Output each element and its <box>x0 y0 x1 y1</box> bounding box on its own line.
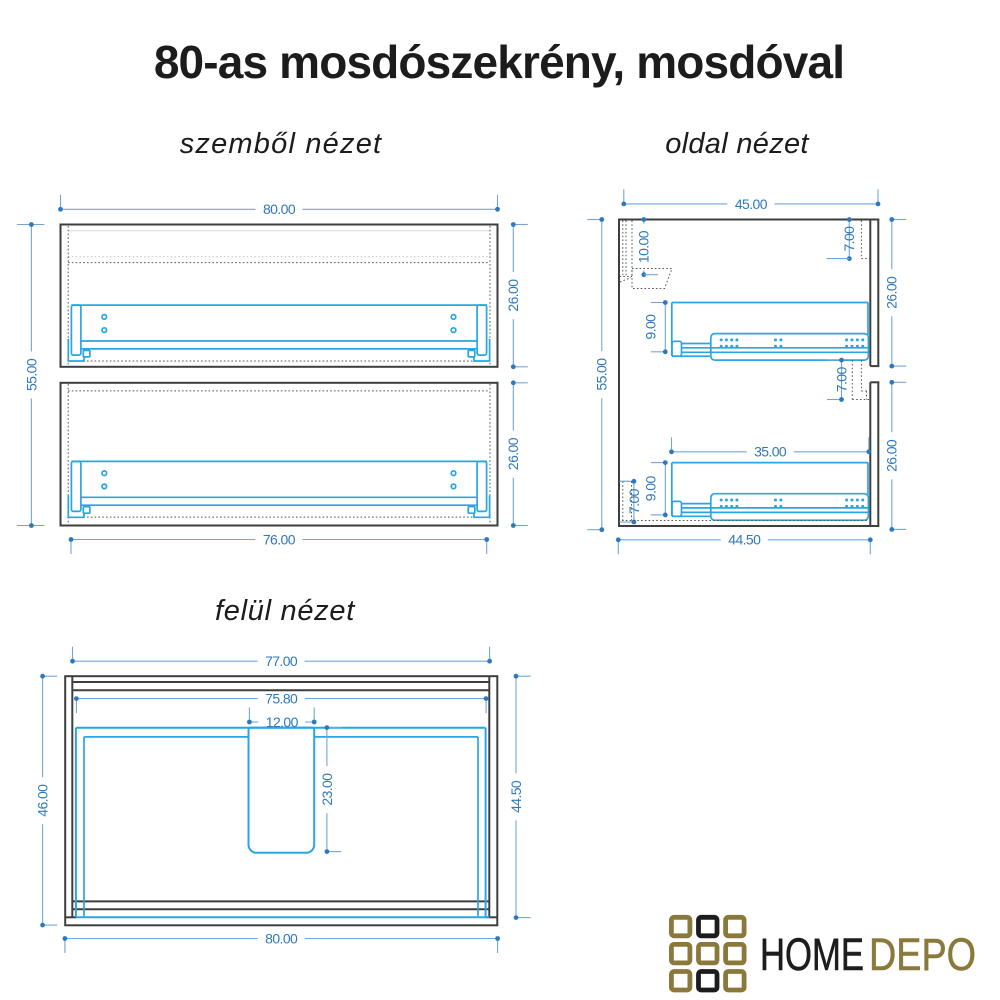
svg-text:HOME: HOME <box>760 929 864 980</box>
svg-text:7.00: 7.00 <box>841 226 857 252</box>
svg-text:7.00: 7.00 <box>833 367 849 393</box>
svg-text:44.50: 44.50 <box>728 532 761 548</box>
svg-text:9.00: 9.00 <box>643 314 659 340</box>
svg-text:7.00: 7.00 <box>626 488 642 514</box>
svg-text:75.80: 75.80 <box>265 691 298 707</box>
svg-text:45.00: 45.00 <box>735 196 768 212</box>
svg-text:80.00: 80.00 <box>265 930 298 946</box>
svg-text:46.00: 46.00 <box>35 784 51 817</box>
svg-text:80.00: 80.00 <box>263 201 296 217</box>
svg-text:23.00: 23.00 <box>319 773 335 806</box>
svg-text:35.00: 35.00 <box>754 444 787 460</box>
svg-text:80-as mosdószekrény, mosdóval: 80-as mosdószekrény, mosdóval <box>154 36 844 88</box>
svg-text:26.00: 26.00 <box>505 437 521 470</box>
svg-text:26.00: 26.00 <box>884 439 900 472</box>
svg-text:44.50: 44.50 <box>508 780 524 813</box>
svg-text:oldal nézet: oldal nézet <box>665 128 810 160</box>
svg-text:9.00: 9.00 <box>643 476 659 502</box>
svg-text:55.00: 55.00 <box>594 358 610 391</box>
svg-text:55.00: 55.00 <box>23 358 39 391</box>
svg-text:10.00: 10.00 <box>636 230 652 263</box>
svg-text:26.00: 26.00 <box>505 279 521 312</box>
svg-text:77.00: 77.00 <box>265 653 298 669</box>
svg-text:szemből nézet: szemből nézet <box>180 128 383 160</box>
svg-text:26.00: 26.00 <box>884 276 900 309</box>
svg-text:felül nézet: felül nézet <box>215 595 356 627</box>
svg-text:DEPO: DEPO <box>869 929 976 980</box>
svg-text:12.00: 12.00 <box>266 714 299 730</box>
svg-text:76.00: 76.00 <box>263 531 296 547</box>
